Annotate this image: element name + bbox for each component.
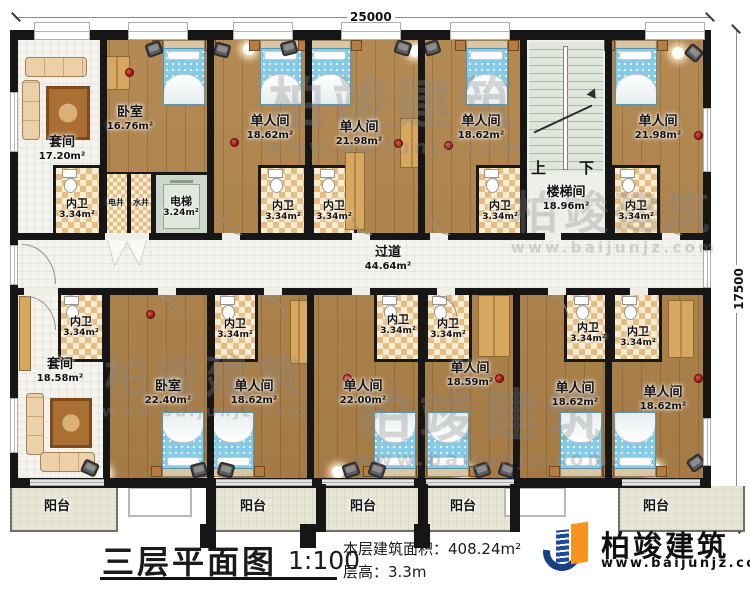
- room-label-corridor: 过道44.64m²: [365, 246, 411, 272]
- wall: [520, 40, 527, 233]
- wall: [418, 295, 425, 478]
- door-opening: [630, 288, 648, 295]
- toilet-icon: [484, 169, 499, 178]
- balcony-post: [414, 524, 430, 548]
- sofa: [25, 57, 87, 77]
- toilet-icon: [62, 169, 77, 178]
- wall: [307, 295, 314, 478]
- red-dot: [230, 138, 239, 147]
- red-dot: [694, 374, 703, 383]
- wall: [207, 40, 214, 233]
- rug: [50, 398, 92, 448]
- toilet-icon: [620, 169, 635, 178]
- red-dot: [125, 68, 134, 77]
- room-label-single-bot-e: 单人间18.62m²: [640, 386, 686, 412]
- door-opening: [352, 288, 370, 295]
- floor-plan-canvas: 25000 17500: [0, 0, 750, 589]
- bed: [615, 40, 657, 105]
- bed: [560, 412, 602, 477]
- room-label-bathroom: 内卫3.34m²: [59, 198, 95, 220]
- balcony-label: 阳台: [350, 500, 376, 515]
- window: [703, 418, 711, 466]
- room-label-bedroom-top: 卧室16.76m²: [107, 106, 153, 132]
- window: [128, 22, 188, 40]
- balcony-post: [200, 524, 216, 548]
- bed: [614, 412, 656, 477]
- door-opening: [158, 288, 176, 295]
- window: [645, 22, 705, 40]
- dimension-right-label: 17500: [732, 265, 746, 313]
- red-dot: [394, 139, 403, 148]
- room-label-bathroom: 内卫3.34m²: [620, 326, 656, 348]
- room-label-stairwell: 楼梯间18.96m²: [543, 186, 589, 212]
- room-label-single-top-a: 单人间18.62m²: [247, 115, 293, 141]
- toilet-icon: [220, 296, 235, 305]
- logo-building-blue: [556, 529, 569, 562]
- room-label-single-top-c: 单人间18.62m²: [458, 115, 504, 141]
- brand-website: www.baijunjz.com: [601, 556, 750, 571]
- bed: [309, 40, 351, 105]
- room-label-single-bot-c: 单人间18.59m²: [447, 362, 493, 388]
- sofa: [26, 393, 44, 455]
- room-label-single-bot-b: 单人间22.00m²: [340, 380, 386, 406]
- lamp: [672, 47, 684, 59]
- floor-area-text: 本层建筑面积：408.24m²: [343, 538, 521, 559]
- toilet-icon: [382, 296, 397, 305]
- bed: [466, 40, 508, 105]
- balcony-post: [300, 524, 316, 548]
- door-opening: [548, 288, 566, 295]
- balcony-door: [322, 479, 414, 486]
- rug: [46, 86, 90, 140]
- red-dot: [495, 374, 504, 383]
- door-opening: [264, 288, 282, 295]
- room-label-elevator: 电梯3.24m²: [163, 196, 199, 218]
- room-label-bedroom-bottom: 卧室22.40m²: [145, 380, 191, 406]
- room-label-suite-top: 套间17.20m²: [39, 136, 85, 162]
- room-label-water-shaft: 水井: [133, 199, 149, 208]
- room-label-bathroom: 内卫3.34m²: [430, 318, 466, 340]
- door-leaf: [127, 239, 150, 266]
- sofa: [22, 80, 40, 140]
- window: [703, 250, 711, 288]
- window: [34, 22, 90, 40]
- wardrobe: [478, 295, 510, 357]
- window-bay: [128, 487, 192, 517]
- stairs-rail: [563, 46, 568, 170]
- toilet-icon: [622, 296, 637, 305]
- room-label-single-bot-a: 单人间18.62m²: [231, 380, 277, 406]
- wardrobe: [290, 300, 308, 364]
- balcony-door: [426, 479, 514, 486]
- room-label-suite-bottom: 套间18.58m²: [37, 358, 83, 384]
- room-label-electric-shaft: 电井: [108, 199, 124, 208]
- balcony-door: [30, 479, 104, 486]
- balcony-door: [622, 479, 700, 486]
- toilet-icon: [320, 169, 335, 178]
- bed: [427, 412, 469, 477]
- wall: [605, 40, 612, 233]
- floor-height-text: 层高：3.3m: [343, 561, 426, 582]
- wall: [418, 40, 425, 233]
- toilet-icon: [574, 296, 589, 305]
- toilet-icon: [268, 169, 283, 178]
- room-label-bathroom: 内卫3.34m²: [482, 200, 518, 222]
- room-label-bathroom: 内卫3.34m²: [618, 200, 654, 222]
- toilet-icon: [64, 296, 79, 305]
- room-label-bathroom: 内卫3.34m²: [63, 316, 99, 338]
- balcony-post: [510, 484, 520, 532]
- room-label-bathroom: 内卫3.34m²: [217, 318, 253, 340]
- room-label-single-top-b: 单人间21.98m²: [336, 121, 382, 147]
- door-leaf: [105, 239, 128, 266]
- window: [703, 108, 711, 172]
- brand-logo-icon: [543, 521, 595, 577]
- door-opening: [24, 288, 58, 295]
- balcony-label: 阳台: [240, 500, 266, 515]
- window: [233, 22, 293, 40]
- wall: [103, 295, 110, 478]
- room-label-bathroom: 内卫3.34m²: [380, 314, 416, 336]
- stairs-up-label: 上: [531, 157, 546, 178]
- door-opening: [437, 288, 455, 295]
- window: [10, 398, 18, 453]
- wall: [513, 295, 520, 478]
- room-label-bathroom: 内卫3.34m²: [570, 322, 606, 344]
- window: [450, 22, 510, 40]
- balcony-post: [316, 484, 326, 532]
- wall: [100, 40, 107, 233]
- wall: [605, 295, 612, 478]
- door-opening: [545, 233, 561, 240]
- wall: [305, 40, 312, 233]
- balcony-label: 阳台: [450, 500, 476, 515]
- room-label-bathroom: 内卫3.34m²: [316, 200, 352, 222]
- logo-building-orange: [571, 522, 588, 564]
- room-label-single-bot-d: 单人间18.62m²: [552, 382, 598, 408]
- wall: [207, 295, 214, 478]
- balcony-label: 阳台: [44, 500, 70, 515]
- balcony-label: 阳台: [643, 500, 669, 515]
- stairs-down-label: 下: [579, 157, 594, 178]
- red-dot: [146, 310, 155, 319]
- red-dot: [444, 141, 453, 150]
- window: [341, 22, 401, 40]
- bed: [163, 40, 205, 105]
- room-label-single-top-d: 单人间21.98m²: [635, 115, 681, 141]
- window: [10, 92, 18, 152]
- balcony-door: [216, 479, 312, 486]
- room-label-bathroom: 内卫3.34m²: [265, 200, 301, 222]
- wardrobe: [668, 300, 694, 358]
- title-underline: [100, 577, 337, 580]
- red-dot: [694, 131, 703, 140]
- window: [10, 245, 18, 285]
